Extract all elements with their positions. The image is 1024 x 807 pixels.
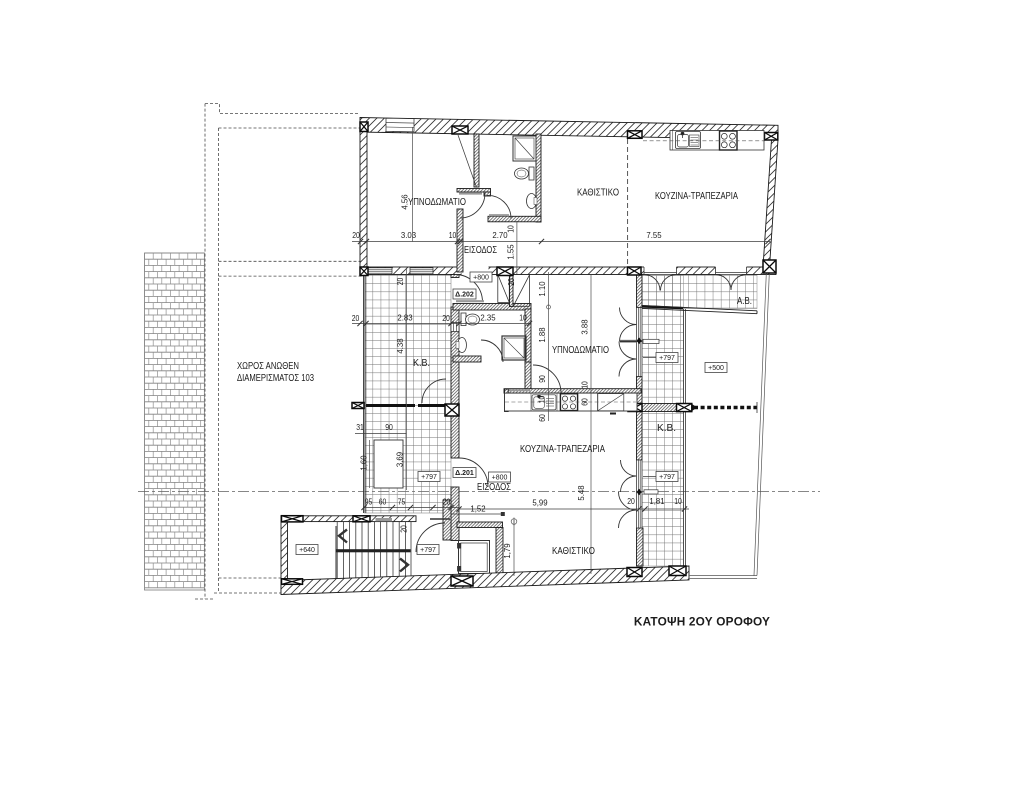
svg-text:5,99: 5,99 — [532, 499, 548, 508]
svg-text:5.48: 5.48 — [577, 485, 586, 501]
svg-text:20: 20 — [400, 525, 409, 533]
svg-text:Δ.202: Δ.202 — [455, 292, 474, 299]
svg-text:ΔΙΑΜΕΡΙΣΜΑΤΟΣ 103: ΔΙΑΜΕΡΙΣΜΑΤΟΣ 103 — [237, 373, 314, 384]
svg-text:Δ.201: Δ.201 — [455, 470, 474, 477]
svg-text:+797: +797 — [659, 474, 675, 481]
svg-text:20: 20 — [352, 314, 360, 323]
svg-text:+500: +500 — [708, 365, 724, 372]
svg-text:20: 20 — [627, 497, 635, 506]
svg-text:10: 10 — [581, 381, 590, 389]
svg-text:60: 60 — [538, 414, 547, 422]
svg-text:+797: +797 — [659, 355, 675, 362]
svg-text:20: 20 — [442, 314, 450, 323]
svg-text:2.35: 2.35 — [480, 314, 496, 323]
svg-text:1,81: 1,81 — [649, 497, 665, 506]
svg-text:ΥΠΝΟΔΩΜΑΤΙΟ: ΥΠΝΟΔΩΜΑΤΙΟ — [408, 197, 466, 208]
svg-text:ΚΟΥΖΙΝΑ-ΤΡΑΠΕΖΑΡΙΑ: ΚΟΥΖΙΝΑ-ΤΡΑΠΕΖΑΡΙΑ — [520, 444, 605, 455]
svg-text:Κ.Β.: Κ.Β. — [657, 423, 676, 434]
svg-text:7.55: 7.55 — [646, 231, 662, 240]
svg-text:20: 20 — [396, 277, 405, 285]
svg-text:60: 60 — [379, 498, 387, 507]
svg-text:90: 90 — [538, 375, 547, 383]
svg-text:Κ.Β.: Κ.Β. — [413, 358, 430, 369]
svg-text:ΕΙΣΟΔΟΣ: ΕΙΣΟΔΟΣ — [477, 482, 511, 493]
svg-text:1,52: 1,52 — [470, 505, 486, 514]
svg-text:20: 20 — [443, 498, 451, 507]
svg-text:ΕΙΣΟΔΟΣ: ΕΙΣΟΔΟΣ — [464, 245, 497, 256]
svg-text:ΚΑΤΟΨΗ 2ΟΥ ΟΡΟΦΟΥ: ΚΑΤΟΨΗ 2ΟΥ ΟΡΟΦΟΥ — [634, 615, 770, 629]
svg-text:10: 10 — [449, 231, 457, 240]
svg-text:10: 10 — [519, 314, 527, 323]
svg-text:10: 10 — [507, 225, 516, 233]
svg-text:ΚΑΘΙΣΤΙΚΟ: ΚΑΘΙΣΤΙΚΟ — [577, 188, 619, 199]
svg-text:+640: +640 — [299, 547, 315, 554]
svg-text:20: 20 — [507, 278, 516, 286]
svg-text:10: 10 — [538, 395, 547, 403]
svg-text:60: 60 — [581, 398, 590, 406]
svg-text:1.88: 1.88 — [538, 327, 547, 343]
svg-text:4.38: 4.38 — [396, 338, 405, 354]
svg-text:ΥΠΝΟΔΩΜΑΤΙΟ: ΥΠΝΟΔΩΜΑΤΙΟ — [552, 345, 609, 356]
svg-text:90: 90 — [385, 423, 393, 432]
svg-text:3.88: 3.88 — [581, 319, 590, 335]
svg-text:+797: +797 — [421, 474, 437, 481]
svg-text:95: 95 — [365, 498, 373, 507]
svg-text:Α.Β.: Α.Β. — [737, 296, 752, 307]
svg-text:+800: +800 — [492, 475, 508, 482]
svg-text:1,60: 1,60 — [360, 455, 369, 471]
svg-text:20: 20 — [352, 231, 360, 240]
svg-text:75: 75 — [398, 498, 406, 507]
svg-text:1,79: 1,79 — [503, 543, 512, 559]
svg-text:+797: +797 — [420, 547, 436, 554]
svg-text:2.83: 2.83 — [397, 314, 413, 323]
svg-text:10: 10 — [674, 497, 682, 506]
svg-text:31: 31 — [356, 423, 364, 432]
svg-text:1.10: 1.10 — [538, 281, 547, 297]
svg-text:ΚΑΘΙΣΤΙΚΟ: ΚΑΘΙΣΤΙΚΟ — [552, 546, 595, 557]
svg-text:1.55: 1.55 — [507, 244, 516, 260]
svg-text:ΧΩΡΟΣ ΑΝΩΘΕΝ: ΧΩΡΟΣ ΑΝΩΘΕΝ — [237, 361, 299, 372]
svg-text:3,69: 3,69 — [396, 451, 405, 467]
svg-text:+800: +800 — [473, 275, 489, 282]
svg-text:3.03: 3.03 — [401, 231, 417, 240]
svg-text:ΚΟΥΖΙΝΑ-ΤΡΑΠΕΖΑΡΙΑ: ΚΟΥΖΙΝΑ-ΤΡΑΠΕΖΑΡΙΑ — [655, 191, 738, 202]
